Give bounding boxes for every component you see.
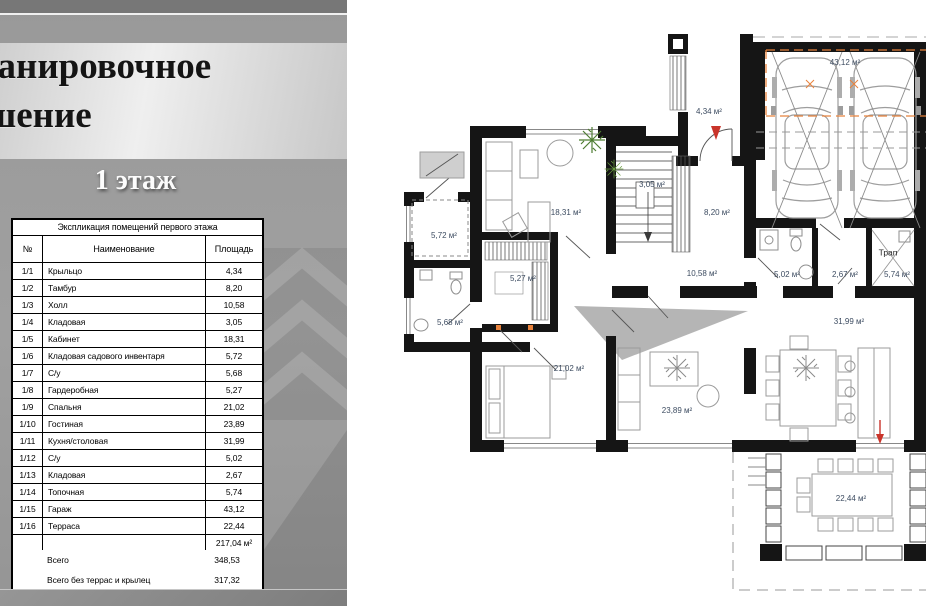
- table-row: 1/4Кладовая3,05: [13, 314, 262, 331]
- cell-num: 1/8: [13, 382, 42, 398]
- room-label-cabinet: 18,31 м²: [551, 208, 582, 217]
- room-label-porch: 4,34 м²: [696, 107, 722, 116]
- cell-num: 1/5: [13, 331, 42, 347]
- cell-num: 1/7: [13, 365, 42, 381]
- room-label-boiler: 5,74 м²: [884, 270, 910, 279]
- total-row: Всего 348,53: [13, 550, 262, 570]
- total-label: Всего: [47, 550, 69, 570]
- cell-num: 1/6: [13, 348, 42, 364]
- cell-name: Кухня/столовая: [42, 433, 205, 449]
- cell-name: Гараж: [42, 501, 205, 517]
- cell-name: Кладовая: [42, 314, 205, 330]
- cell-area: 5,68: [205, 365, 262, 381]
- header-name: Наименование: [42, 236, 205, 262]
- garage-cars: [771, 52, 921, 228]
- room-label-bath2: 5,02 м²: [774, 270, 800, 279]
- cell-area: 5,74: [205, 484, 262, 500]
- room-label-living: 23,89 м²: [662, 406, 693, 415]
- room-label-terrace: 22,44 м²: [836, 494, 867, 503]
- subtotal-row: 217,04 м²: [13, 535, 262, 550]
- cell-name: Кабинет: [42, 331, 205, 347]
- terrace-steps: [748, 458, 766, 485]
- table-row: 1/16Терраса22,44: [13, 518, 262, 535]
- table-row: 1/15Гараж43,12: [13, 501, 262, 518]
- table-row: 1/5Кабинет18,31: [13, 331, 262, 348]
- staircase: [616, 152, 672, 242]
- panel-footer: [0, 589, 347, 606]
- walls: [404, 34, 926, 452]
- cell-name: Топочная: [42, 484, 205, 500]
- cell-name: Гостиная: [42, 416, 205, 432]
- cell-num: 1/3: [13, 297, 42, 313]
- table-row: 1/12С/у5,02: [13, 450, 262, 467]
- room-label-hall: 10,58 м²: [687, 269, 718, 278]
- cell-area: 43,12: [205, 501, 262, 517]
- cell-name: Спальня: [42, 399, 205, 415]
- cell-num: 1/10: [13, 416, 42, 432]
- room-label-storage2: 2,67 м²: [832, 270, 858, 279]
- cell-num: 1/12: [13, 450, 42, 466]
- room-label-garage: 43,12 м²: [830, 58, 861, 67]
- floor-drain-label: Трап: [879, 247, 898, 257]
- cell-name: Крыльцо: [42, 263, 205, 279]
- cell-name: Кладовая: [42, 467, 205, 483]
- header-number: №: [13, 236, 42, 262]
- cell-name: Кладовая садового инвентаря: [42, 348, 205, 364]
- cell-area: 23,89: [205, 416, 262, 432]
- cell-area: 5,27: [205, 382, 262, 398]
- table-row: 1/10Гостиная23,89: [13, 416, 262, 433]
- entrance-canopy: [420, 152, 464, 178]
- cell-name: Тамбур: [42, 280, 205, 296]
- cell-name: Терраса: [42, 518, 205, 534]
- table-row: 1/9Спальня21,02: [13, 399, 262, 416]
- cell-num: 1/2: [13, 280, 42, 296]
- floor-plan-drawing: 43,12 м² 4,34 м² 5,72 м² 18,31 м² 3,05 м…: [346, 0, 926, 606]
- table-row: 1/7С/у5,68: [13, 365, 262, 382]
- cell-num: 1/1: [13, 263, 42, 279]
- room-label-understairs: 3,05 м²: [639, 180, 665, 189]
- cell-num: 1/16: [13, 518, 42, 534]
- decor-tree-icon: [664, 355, 819, 381]
- room-label-garden-storage: 5,72 м²: [431, 231, 457, 240]
- cell-area: 18,31: [205, 331, 262, 347]
- cell-area: 5,72: [205, 348, 262, 364]
- table-row: 1/3Холл10,58: [13, 297, 262, 314]
- cell-num: 1/11: [13, 433, 42, 449]
- cell-area: 31,99: [205, 433, 262, 449]
- terrace: [748, 454, 926, 561]
- table-row: 1/8Гардеробная5,27: [13, 382, 262, 399]
- total2-value: 317,32: [202, 570, 252, 590]
- total-value: 348,53: [202, 550, 252, 570]
- cell-name: С/у: [42, 450, 205, 466]
- panel-top-strip: [0, 0, 347, 13]
- explication-rows: 1/1Крыльцо4,341/2Тамбур8,201/3Холл10,581…: [13, 263, 262, 535]
- slide-title-line2: решение: [0, 92, 347, 141]
- cell-name: Гардеробная: [42, 382, 205, 398]
- cell-area: 3,05: [205, 314, 262, 330]
- room-label-tambour: 8,20 м²: [704, 208, 730, 217]
- table-row: 1/13Кладовая2,67: [13, 467, 262, 484]
- subtotal-area: 217,04 м²: [205, 535, 262, 550]
- cell-num: 1/13: [13, 467, 42, 483]
- room-label-bedroom: 21,02 м²: [554, 364, 585, 373]
- cell-area: 21,02: [205, 399, 262, 415]
- slide-page: Планировочное решение 1 этаж Экспликация…: [0, 0, 926, 606]
- left-panel: Планировочное решение 1 этаж Экспликация…: [0, 0, 347, 606]
- cell-num: 1/9: [13, 399, 42, 415]
- car-left: [771, 58, 843, 218]
- explication-table: Экспликация помещений первого этажа № На…: [11, 218, 264, 592]
- header-area: Площадь: [205, 236, 262, 262]
- table-row: 1/11Кухня/столовая31,99: [13, 433, 262, 450]
- cell-name: С/у: [42, 365, 205, 381]
- table-row: 1/6Кладовая садового инвентаря5,72: [13, 348, 262, 365]
- cell-num: 1/15: [13, 501, 42, 517]
- cell-area: 4,34: [205, 263, 262, 279]
- slide-title-line1: Планировочное: [0, 43, 347, 92]
- table-row: 1/2Тамбур8,20: [13, 280, 262, 297]
- cell-area: 2,67: [205, 467, 262, 483]
- entrance-marker: [711, 126, 721, 140]
- cell-num: 1/4: [13, 314, 42, 330]
- subtotal-empty-name: [42, 535, 205, 550]
- cell-area: 22,44: [205, 518, 262, 534]
- cell-area: 8,20: [205, 280, 262, 296]
- table-row: 1/14Топочная5,74: [13, 484, 262, 501]
- cell-num: 1/14: [13, 484, 42, 500]
- cell-area: 5,02: [205, 450, 262, 466]
- room-label-wardrobe: 5,27 м²: [510, 274, 536, 283]
- room-label-bath1: 5,68 м²: [437, 318, 463, 327]
- title-band: Планировочное решение: [0, 43, 347, 159]
- total2-label: Всего без террас и крылец: [47, 570, 150, 590]
- table-row: 1/1Крыльцо4,34: [13, 263, 262, 280]
- cell-name: Холл: [42, 297, 205, 313]
- total-row-no-terrace: Всего без террас и крылец 317,32: [13, 570, 262, 590]
- panel-divider-line: [0, 13, 347, 15]
- subtotal-empty-num: [13, 535, 42, 550]
- car-right: [849, 58, 921, 218]
- floor-heading: 1 этаж: [0, 165, 309, 197]
- table-header-row: № Наименование Площадь: [13, 236, 262, 263]
- cell-area: 10,58: [205, 297, 262, 313]
- room-label-kitchen: 31,99 м²: [834, 317, 865, 326]
- table-caption: Экспликация помещений первого этажа: [13, 220, 262, 236]
